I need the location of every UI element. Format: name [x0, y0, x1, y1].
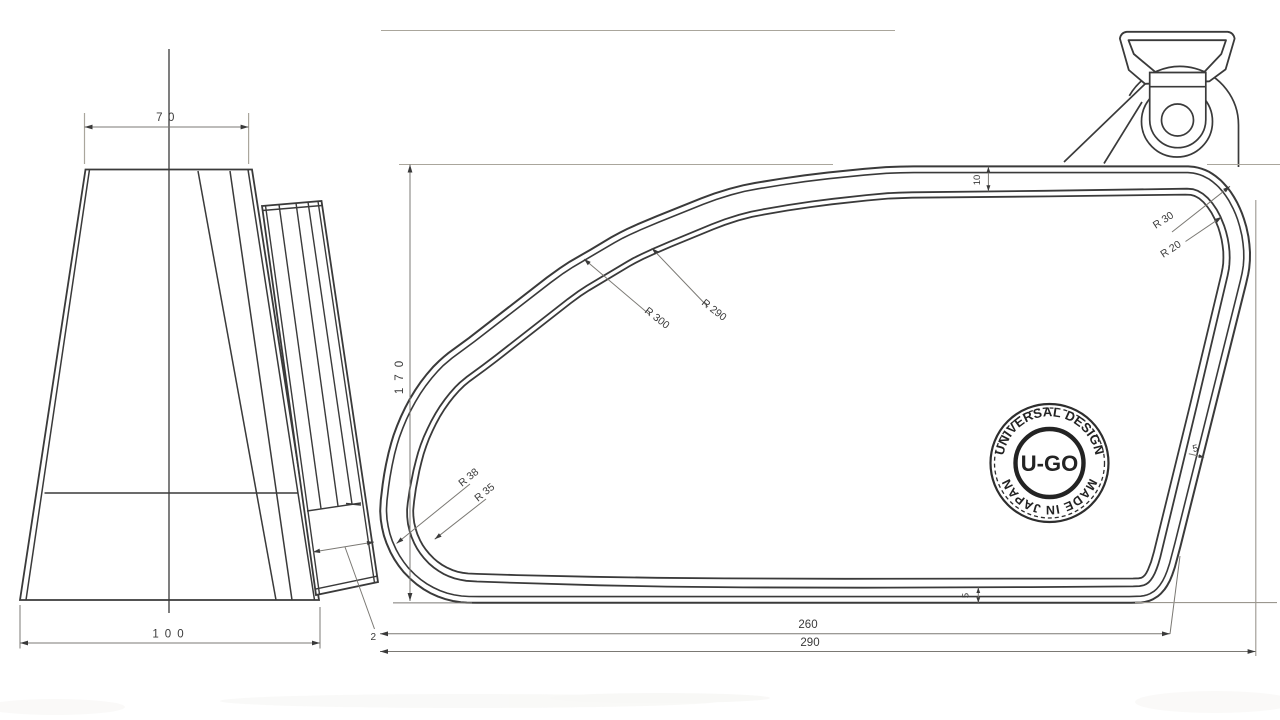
svg-text:70: 70 — [156, 112, 180, 124]
svg-text:10: 10 — [972, 175, 983, 186]
svg-text:100: 100 — [152, 629, 189, 641]
svg-text:260: 260 — [798, 619, 817, 631]
svg-text:2: 2 — [371, 632, 377, 643]
svg-text:5: 5 — [961, 593, 972, 598]
svg-text:U-GO: U-GO — [1021, 451, 1078, 476]
svg-text:290: 290 — [800, 637, 819, 649]
svg-text:170: 170 — [394, 354, 406, 394]
